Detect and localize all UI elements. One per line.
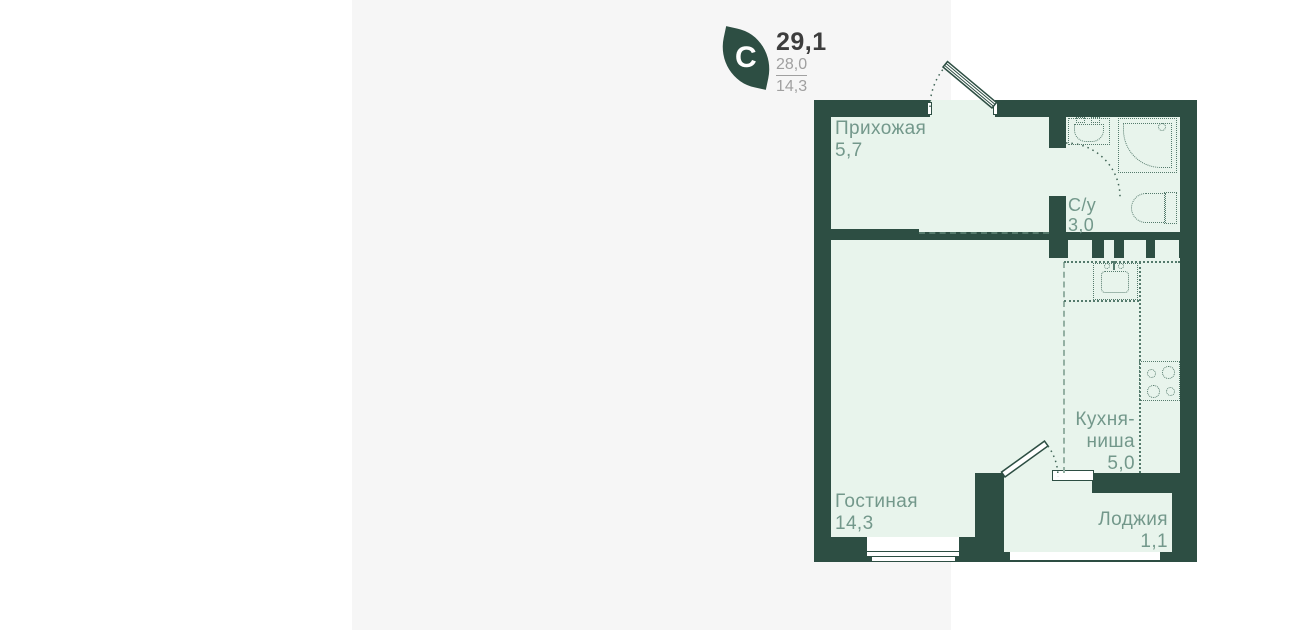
shaft-vent (1155, 240, 1179, 258)
room-area: 5,0 (1035, 453, 1135, 475)
living-window-sill (872, 557, 955, 561)
room-area: 3,0 (1068, 215, 1096, 235)
secondary-area-value: 28,0 (776, 56, 807, 76)
bathroom-door-opening (1049, 148, 1066, 196)
total-area-value: 29,1 (776, 29, 827, 56)
room-name: Кухня- (1035, 409, 1135, 431)
logo-leaf-icon: C (715, 26, 777, 90)
living-window-sill (867, 552, 959, 556)
loggia-window (1010, 552, 1160, 560)
entrance-opening (930, 100, 995, 117)
floorplan-card: C 29,1 28,0 14,3 (352, 0, 951, 630)
room-area: 1,1 (1068, 531, 1168, 553)
label-hallway: Прихожая 5,7 (835, 118, 926, 162)
room-area: 14,3 (835, 513, 918, 535)
label-loggia: Лоджия 1,1 (1068, 509, 1168, 553)
room-name: С/у (1068, 195, 1096, 215)
wall-divider (814, 229, 919, 240)
floor-plan: Прихожая 5,7 С/у 3,0 Кухня- ниша 5,0 Гос… (814, 100, 1197, 562)
area-legend: 29,1 28,0 14,3 (776, 29, 827, 96)
label-kitchen: Кухня- ниша 5,0 (1035, 409, 1135, 475)
room-living-kitchen (831, 240, 1049, 473)
wall-kitchen-loggia (1092, 473, 1180, 493)
shaft-vent (1104, 240, 1114, 258)
room-name: ниша (1035, 431, 1135, 453)
room-name: Гостиная (835, 491, 918, 513)
kitchen-counter-line (1064, 300, 1139, 302)
room-name: Лоджия (1068, 509, 1168, 531)
shaft-vent (1124, 240, 1146, 258)
shaft-vent (1068, 240, 1092, 258)
label-living: Гостиная 14,3 (835, 491, 918, 535)
tertiary-area-value: 14,3 (776, 78, 827, 96)
zone-divider-dashed (919, 232, 1049, 234)
room-area: 5,7 (835, 140, 926, 162)
door-jamb (993, 102, 998, 115)
room-name: Прихожая (835, 118, 926, 140)
label-bathroom: С/у 3,0 (1068, 195, 1096, 235)
page: C 29,1 28,0 14,3 (0, 0, 1301, 630)
living-window (867, 537, 959, 551)
door-jamb (927, 102, 932, 115)
logo-letter: C (735, 43, 757, 73)
